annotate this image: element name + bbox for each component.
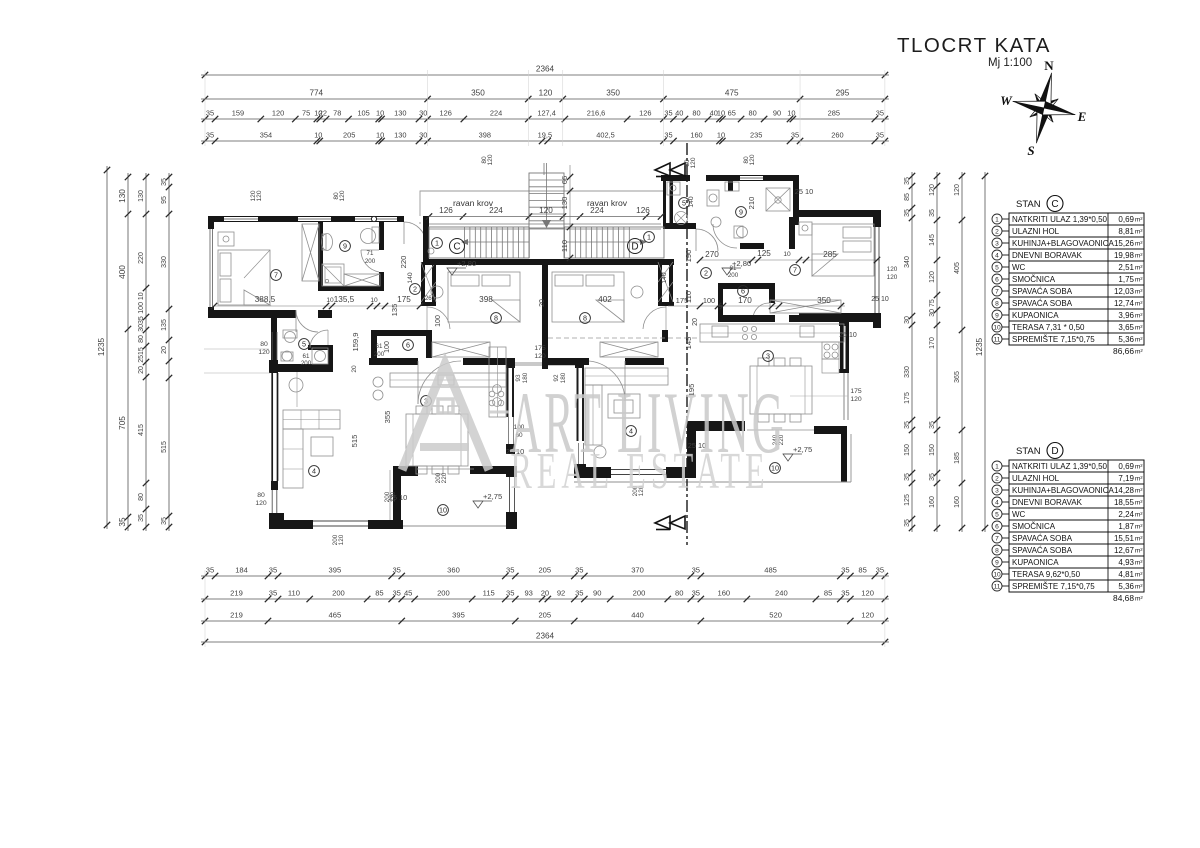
svg-text:330: 330 <box>904 366 911 378</box>
svg-text:2364: 2364 <box>536 632 555 641</box>
svg-text:SPREMIŠTE 7,15*0,75: SPREMIŠTE 7,15*0,75 <box>1012 335 1095 344</box>
svg-text:5,36: 5,36 <box>1118 335 1134 344</box>
svg-text:4: 4 <box>995 499 999 506</box>
svg-text:KUPAONICA: KUPAONICA <box>1012 311 1059 320</box>
svg-text:22: 22 <box>319 109 327 118</box>
svg-text:20: 20 <box>541 589 549 598</box>
svg-text:120: 120 <box>338 534 345 545</box>
svg-text:120: 120 <box>272 109 284 118</box>
svg-text:115: 115 <box>483 589 495 598</box>
svg-text:35: 35 <box>904 177 911 185</box>
svg-text:10: 10 <box>993 324 1001 331</box>
svg-text:10: 10 <box>783 251 791 258</box>
svg-text:0,69: 0,69 <box>1118 462 1134 471</box>
svg-text:18,55: 18,55 <box>1114 498 1135 507</box>
svg-text:85: 85 <box>904 193 911 201</box>
svg-text:515: 515 <box>350 435 359 448</box>
svg-text:402: 402 <box>598 295 612 304</box>
svg-text:2: 2 <box>995 475 999 482</box>
svg-text:4,93: 4,93 <box>1118 558 1134 567</box>
svg-text:m²: m² <box>1135 572 1142 579</box>
svg-text:160: 160 <box>954 496 961 508</box>
svg-text:145: 145 <box>929 234 936 246</box>
svg-text:705: 705 <box>118 416 127 430</box>
svg-text:C: C <box>1051 199 1058 210</box>
svg-text:90: 90 <box>593 589 601 598</box>
svg-text:m²: m² <box>1135 524 1142 531</box>
svg-text:80: 80 <box>692 109 700 118</box>
svg-text:135: 135 <box>161 319 168 331</box>
svg-text:6: 6 <box>995 276 999 283</box>
svg-text:120: 120 <box>256 190 263 201</box>
svg-text:261: 261 <box>425 295 436 302</box>
svg-text:30 75: 30 75 <box>929 299 936 317</box>
svg-text:m²: m² <box>1135 512 1142 519</box>
svg-text:DNEVNI BORAVAK: DNEVNI BORAVAK <box>1012 251 1083 260</box>
svg-text:126: 126 <box>639 109 651 118</box>
svg-text:35: 35 <box>506 566 514 575</box>
svg-text:5: 5 <box>995 264 999 271</box>
svg-text:3: 3 <box>995 487 999 494</box>
svg-text:12,67: 12,67 <box>1114 546 1135 555</box>
svg-text:11: 11 <box>994 336 1001 343</box>
svg-text:92: 92 <box>557 589 565 598</box>
svg-text:220: 220 <box>399 256 408 269</box>
svg-text:35: 35 <box>269 566 277 575</box>
svg-text:90: 90 <box>773 109 781 118</box>
svg-text:35: 35 <box>904 209 911 217</box>
svg-text:110: 110 <box>684 291 693 303</box>
svg-text:9: 9 <box>343 242 347 251</box>
svg-text:75: 75 <box>302 109 310 118</box>
svg-text:210: 210 <box>747 197 756 210</box>
svg-text:Mj 1:100: Mj 1:100 <box>988 57 1032 69</box>
svg-text:C: C <box>453 242 460 253</box>
svg-text:25 10: 25 10 <box>795 187 814 196</box>
svg-text:205: 205 <box>343 131 355 140</box>
svg-text:219: 219 <box>230 589 243 598</box>
svg-text:m²: m² <box>1135 301 1142 308</box>
svg-text:19,98: 19,98 <box>1114 251 1135 260</box>
svg-text:150: 150 <box>929 444 936 456</box>
svg-text:15,51: 15,51 <box>1114 534 1135 543</box>
svg-text:10: 10 <box>326 297 334 304</box>
svg-text:360: 360 <box>447 566 460 575</box>
svg-text:774: 774 <box>309 89 323 98</box>
svg-text:395: 395 <box>452 611 465 620</box>
svg-text:8: 8 <box>583 314 587 323</box>
svg-text:2515: 2515 <box>138 347 145 363</box>
svg-text:+2,75: +2,75 <box>483 492 502 501</box>
svg-text:185: 185 <box>954 452 961 464</box>
svg-text:200: 200 <box>365 258 376 265</box>
svg-text:30: 30 <box>904 316 911 324</box>
svg-text:120: 120 <box>534 353 546 360</box>
svg-text:20: 20 <box>138 366 145 374</box>
svg-text:10: 10 <box>370 297 378 304</box>
svg-text:NATKRITI ULAZ 1,39*0,50: NATKRITI ULAZ 1,39*0,50 <box>1012 215 1108 224</box>
svg-text:35: 35 <box>161 517 168 525</box>
svg-text:DNEVNI BORAVAK: DNEVNI BORAVAK <box>1012 498 1083 507</box>
svg-text:120: 120 <box>390 491 397 502</box>
svg-text:130: 130 <box>138 190 145 202</box>
svg-text:475: 475 <box>725 89 739 98</box>
svg-text:120: 120 <box>954 184 961 196</box>
svg-text:m²: m² <box>1135 500 1142 507</box>
svg-text:D: D <box>1051 446 1058 457</box>
svg-text:m²: m² <box>1135 584 1142 591</box>
svg-text:340: 340 <box>904 256 911 268</box>
svg-text:0,69: 0,69 <box>1118 215 1134 224</box>
svg-text:355: 355 <box>383 411 392 424</box>
svg-text:78: 78 <box>333 109 341 118</box>
svg-text:175: 175 <box>904 392 911 404</box>
svg-text:260: 260 <box>831 131 843 140</box>
svg-text:350: 350 <box>606 89 620 98</box>
svg-text:95: 95 <box>161 196 168 204</box>
svg-text:485: 485 <box>764 566 777 575</box>
svg-text:3: 3 <box>766 352 770 361</box>
svg-text:1235: 1235 <box>975 337 984 356</box>
svg-text:120: 120 <box>749 154 756 165</box>
svg-text:D: D <box>631 242 638 253</box>
svg-text:120: 120 <box>539 89 553 98</box>
svg-text:25 10: 25 10 <box>871 296 889 303</box>
svg-text:100: 100 <box>384 341 391 353</box>
svg-text:140: 140 <box>688 196 695 208</box>
svg-text:m²: m² <box>1135 241 1142 248</box>
svg-text:120: 120 <box>255 500 267 507</box>
svg-text:15,26: 15,26 <box>1114 239 1135 248</box>
svg-text:110: 110 <box>288 589 300 598</box>
svg-text:150: 150 <box>904 444 911 456</box>
svg-text:10: 10 <box>439 506 447 515</box>
svg-text:3,96: 3,96 <box>1118 311 1134 320</box>
svg-text:120: 120 <box>887 266 898 273</box>
svg-text:405: 405 <box>954 262 961 274</box>
svg-text:120: 120 <box>929 271 936 283</box>
svg-text:N: N <box>1044 58 1054 73</box>
svg-text:7: 7 <box>995 535 999 542</box>
svg-text:5: 5 <box>995 511 999 518</box>
svg-text:KUHINJA+BLAGOVAONICA: KUHINJA+BLAGOVAONICA <box>1012 486 1115 495</box>
svg-text:85: 85 <box>858 566 866 575</box>
svg-text:61: 61 <box>376 343 383 350</box>
svg-text:2364: 2364 <box>536 65 555 74</box>
svg-text:80: 80 <box>138 493 145 501</box>
svg-text:m²: m² <box>1135 536 1142 543</box>
svg-text:4,81: 4,81 <box>1118 570 1134 579</box>
svg-text:350: 350 <box>817 296 831 305</box>
svg-text:8: 8 <box>995 547 999 554</box>
svg-text:126: 126 <box>440 109 452 118</box>
svg-text:205: 205 <box>538 611 551 620</box>
svg-text:35: 35 <box>664 131 672 140</box>
svg-text:10: 10 <box>787 109 795 118</box>
svg-text:30: 30 <box>419 131 427 140</box>
svg-text:80: 80 <box>257 492 265 499</box>
svg-text:35: 35 <box>664 109 672 118</box>
svg-text:170: 170 <box>738 296 752 305</box>
svg-text:216,6: 216,6 <box>587 109 606 118</box>
svg-text:REAL ESTATE: REAL ESTATE <box>510 442 769 500</box>
svg-text:20: 20 <box>161 346 168 354</box>
svg-text:S: S <box>1027 143 1034 158</box>
svg-text:35: 35 <box>876 566 884 575</box>
svg-text:86,66: 86,66 <box>1113 346 1134 356</box>
svg-text:219: 219 <box>230 611 243 620</box>
svg-text:NATKRITI ULAZ 1,39*0,50: NATKRITI ULAZ 1,39*0,50 <box>1012 462 1108 471</box>
svg-text:120: 120 <box>539 206 553 215</box>
svg-text:45: 45 <box>404 589 412 598</box>
svg-text:9: 9 <box>995 312 999 319</box>
svg-text:71: 71 <box>367 250 374 257</box>
svg-text:130: 130 <box>118 189 127 203</box>
svg-text:2: 2 <box>413 285 417 294</box>
svg-text:35: 35 <box>876 131 884 140</box>
svg-text:220: 220 <box>138 252 145 264</box>
svg-text:370: 370 <box>631 566 644 575</box>
svg-text:m²: m² <box>1135 313 1142 320</box>
svg-text:85: 85 <box>375 589 383 598</box>
svg-text:127,4: 127,4 <box>537 109 556 118</box>
svg-text:9: 9 <box>739 208 743 217</box>
svg-text:10: 10 <box>376 131 384 140</box>
svg-text:125: 125 <box>904 494 911 506</box>
svg-text:465: 465 <box>329 611 342 620</box>
svg-text:6: 6 <box>741 287 745 296</box>
svg-text:140: 140 <box>661 272 668 284</box>
svg-text:400: 400 <box>118 265 127 279</box>
svg-text:388,5: 388,5 <box>255 295 276 304</box>
svg-text:7,19: 7,19 <box>1118 474 1134 483</box>
svg-text:35: 35 <box>692 566 700 575</box>
svg-text:330: 330 <box>161 256 168 268</box>
svg-text:415: 415 <box>138 424 145 436</box>
svg-text:120: 120 <box>690 157 697 168</box>
svg-text:35: 35 <box>161 178 168 186</box>
svg-text:STAN: STAN <box>1016 199 1041 210</box>
svg-text:1: 1 <box>995 463 999 470</box>
svg-text:m²: m² <box>1135 349 1143 356</box>
svg-text:m²: m² <box>1135 548 1142 555</box>
svg-text:1: 1 <box>647 233 651 242</box>
svg-text:1,75: 1,75 <box>1118 275 1134 284</box>
svg-text:2: 2 <box>995 228 999 235</box>
svg-text:+2,75: +2,75 <box>793 445 812 454</box>
svg-text:285: 285 <box>828 109 840 118</box>
svg-text:m²: m² <box>1135 596 1143 603</box>
svg-text:m²: m² <box>1135 289 1142 296</box>
svg-text:130: 130 <box>560 197 569 210</box>
svg-text:35: 35 <box>206 566 214 575</box>
svg-text:100: 100 <box>435 315 442 327</box>
svg-text:KUPAONICA: KUPAONICA <box>1012 558 1059 567</box>
svg-text:SMOČNICA: SMOČNICA <box>1012 275 1056 284</box>
svg-text:81: 81 <box>730 265 737 272</box>
svg-text:WC: WC <box>1012 263 1026 272</box>
svg-text:14,28: 14,28 <box>1114 486 1135 495</box>
svg-text:10: 10 <box>314 131 322 140</box>
svg-text:135,5: 135,5 <box>334 295 355 304</box>
svg-text:120: 120 <box>258 349 270 356</box>
svg-text:100 10: 100 10 <box>138 292 145 314</box>
svg-text:35: 35 <box>929 473 936 481</box>
svg-text:m²: m² <box>1135 265 1142 272</box>
svg-text:E: E <box>1077 109 1087 124</box>
svg-text:1,87: 1,87 <box>1118 522 1134 531</box>
svg-text:STAN: STAN <box>1016 446 1041 457</box>
svg-text:160: 160 <box>690 131 702 140</box>
svg-text:105: 105 <box>357 109 369 118</box>
svg-text:6: 6 <box>995 523 999 530</box>
svg-text:KUHINJA+BLAGOVAONICA: KUHINJA+BLAGOVAONICA <box>1012 239 1115 248</box>
svg-text:80: 80 <box>138 335 145 343</box>
svg-text:12,74: 12,74 <box>1114 299 1135 308</box>
svg-text:3,65: 3,65 <box>1118 323 1134 332</box>
svg-text:W: W <box>1000 93 1013 108</box>
svg-text:10: 10 <box>717 109 725 118</box>
svg-text:20: 20 <box>692 318 699 326</box>
svg-text:35: 35 <box>206 131 214 140</box>
svg-text:350: 350 <box>471 89 485 98</box>
svg-text:40: 40 <box>675 109 683 118</box>
svg-text:35: 35 <box>929 209 936 217</box>
svg-text:160: 160 <box>717 589 730 598</box>
svg-text:120: 120 <box>929 184 936 196</box>
svg-text:270: 270 <box>705 250 719 259</box>
svg-text:SPAVAĆA SOBA: SPAVAĆA SOBA <box>1012 534 1073 543</box>
svg-text:35: 35 <box>841 566 849 575</box>
svg-text:8: 8 <box>494 314 498 323</box>
svg-text:100: 100 <box>703 296 715 305</box>
svg-text:61: 61 <box>303 353 310 360</box>
svg-text:2,51: 2,51 <box>1118 263 1134 272</box>
svg-text:4: 4 <box>995 252 999 259</box>
svg-text:35: 35 <box>876 109 884 118</box>
svg-text:TERASA 7,31 * 0,50: TERASA 7,31 * 0,50 <box>1012 323 1085 332</box>
svg-text:120: 120 <box>487 154 494 165</box>
svg-text:1235: 1235 <box>97 337 106 356</box>
svg-text:224: 224 <box>490 109 502 118</box>
svg-text:80: 80 <box>675 589 683 598</box>
svg-text:2,24: 2,24 <box>1118 510 1134 519</box>
svg-text:35: 35 <box>118 517 127 527</box>
svg-text:520: 520 <box>769 611 782 620</box>
svg-text:35: 35 <box>392 589 400 598</box>
svg-text:398: 398 <box>479 131 491 140</box>
svg-text:7: 7 <box>274 271 278 280</box>
svg-text:m²: m² <box>1135 277 1142 284</box>
svg-text:65: 65 <box>728 109 736 118</box>
svg-text:220: 220 <box>441 472 448 483</box>
svg-text:35: 35 <box>904 421 911 429</box>
svg-text:11: 11 <box>994 583 1001 590</box>
svg-text:93: 93 <box>524 589 532 598</box>
svg-text:SMOČNICA: SMOČNICA <box>1012 522 1056 531</box>
svg-text:35: 35 <box>269 589 277 598</box>
svg-text:35: 35 <box>575 589 583 598</box>
svg-text:10: 10 <box>717 131 725 140</box>
svg-text:235: 235 <box>750 131 762 140</box>
svg-text:120: 120 <box>339 190 346 201</box>
svg-text:84,68: 84,68 <box>1113 593 1134 603</box>
svg-text:m²: m² <box>1135 560 1142 567</box>
svg-text:12,03: 12,03 <box>1114 287 1135 296</box>
svg-text:159,9: 159,9 <box>351 332 360 351</box>
svg-text:120: 120 <box>861 589 874 598</box>
svg-text:120: 120 <box>887 274 898 281</box>
svg-text:295: 295 <box>836 89 850 98</box>
svg-text:200: 200 <box>374 351 385 358</box>
svg-text:35: 35 <box>506 589 514 598</box>
svg-text:5: 5 <box>682 199 686 208</box>
svg-text:35: 35 <box>904 519 911 527</box>
svg-text:35: 35 <box>841 589 849 598</box>
svg-text:395: 395 <box>329 566 342 575</box>
svg-text:m²: m² <box>1135 229 1142 236</box>
svg-text:5,36: 5,36 <box>1118 582 1134 591</box>
svg-text:130: 130 <box>394 131 406 140</box>
svg-text:m²: m² <box>1135 464 1142 471</box>
svg-text:TLOCRT KATA: TLOCRT KATA <box>897 34 1051 57</box>
svg-text:224: 224 <box>489 206 503 215</box>
svg-text:7: 7 <box>793 266 797 275</box>
svg-text:200: 200 <box>633 589 646 598</box>
svg-text:35: 35 <box>929 421 936 429</box>
svg-text:80: 80 <box>260 341 268 348</box>
svg-text:SPREMIŠTE 7,15*0,75: SPREMIŠTE 7,15*0,75 <box>1012 582 1095 591</box>
svg-text:+2,80: +2,80 <box>457 259 476 268</box>
svg-text:175: 175 <box>534 345 546 352</box>
svg-text:WC: WC <box>1012 510 1026 519</box>
svg-text:35: 35 <box>206 109 214 118</box>
svg-text:354: 354 <box>260 131 272 140</box>
svg-text:7: 7 <box>995 288 999 295</box>
svg-text:m²: m² <box>1135 488 1142 495</box>
svg-text:SPAVAĆA SOBA: SPAVAĆA SOBA <box>1012 299 1073 308</box>
svg-text:126: 126 <box>439 206 453 215</box>
svg-text:35: 35 <box>392 566 400 575</box>
svg-text:8: 8 <box>995 300 999 307</box>
svg-text:402,5: 402,5 <box>596 131 615 140</box>
svg-text:6: 6 <box>406 341 410 350</box>
svg-text:440: 440 <box>631 611 644 620</box>
svg-text:10: 10 <box>993 571 1001 578</box>
svg-text:184: 184 <box>235 566 248 575</box>
svg-text:145: 145 <box>684 337 693 350</box>
svg-text:ULAZNI HOL: ULAZNI HOL <box>1012 474 1060 483</box>
svg-text:159: 159 <box>232 109 244 118</box>
svg-text:200: 200 <box>437 589 450 598</box>
svg-text:10: 10 <box>376 109 384 118</box>
svg-text:120: 120 <box>861 611 874 620</box>
svg-text:125: 125 <box>757 249 771 258</box>
svg-text:160: 160 <box>929 496 936 508</box>
svg-text:175: 175 <box>850 388 862 395</box>
svg-text:4: 4 <box>312 467 316 476</box>
svg-text:SPAVAĆA SOBA: SPAVAĆA SOBA <box>1012 546 1073 555</box>
svg-text:35: 35 <box>791 131 799 140</box>
svg-text:205: 205 <box>538 566 551 575</box>
svg-text:m²: m² <box>1135 476 1142 483</box>
svg-text:3035: 3035 <box>138 316 145 332</box>
svg-text:1: 1 <box>435 239 439 248</box>
svg-text:175: 175 <box>397 295 411 304</box>
svg-text:85: 85 <box>824 589 832 598</box>
svg-text:m²: m² <box>1135 337 1142 344</box>
svg-text:1: 1 <box>995 216 999 223</box>
